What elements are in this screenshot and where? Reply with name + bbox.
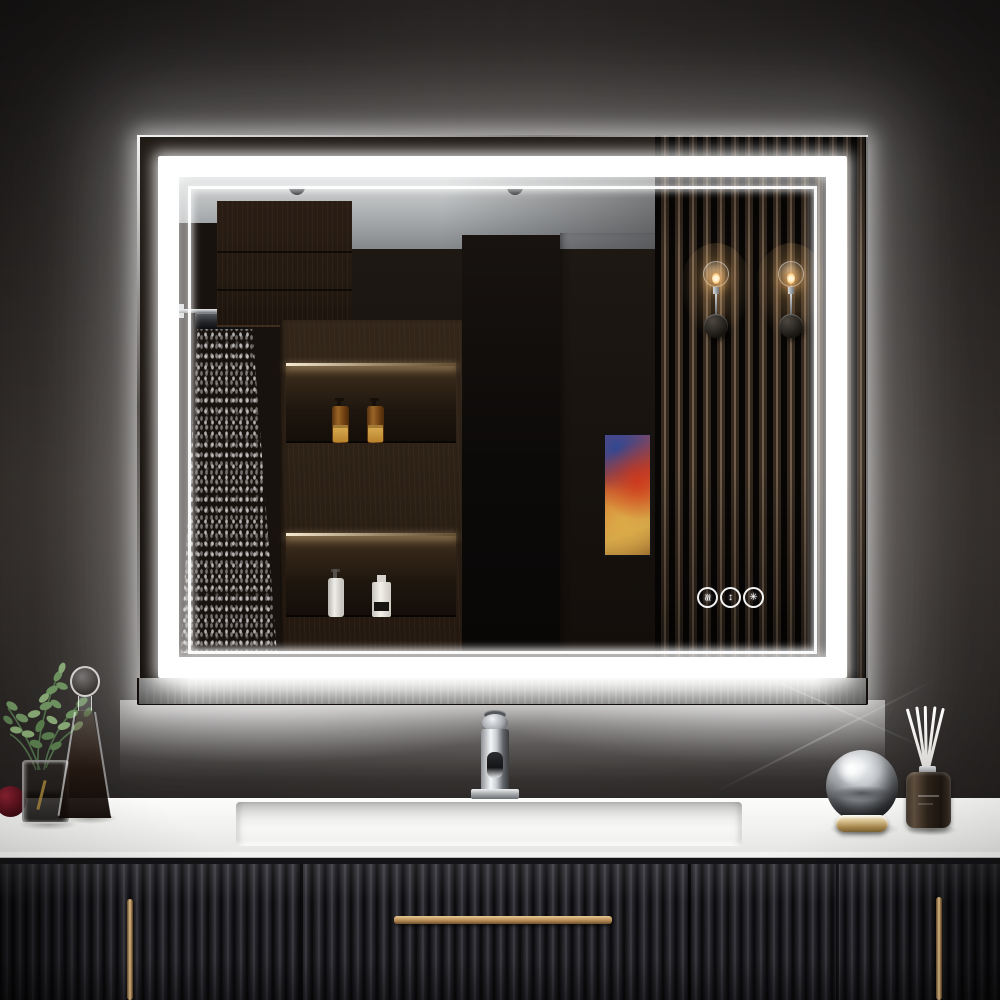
glass-decanter bbox=[57, 666, 113, 818]
diffuser-label bbox=[918, 795, 939, 797]
diffuser-bottle bbox=[906, 772, 951, 828]
touch-controls: ≋ ↕ ✳ bbox=[697, 587, 764, 608]
faucet-spout bbox=[487, 752, 503, 778]
color-temp-button[interactable]: ✳ bbox=[743, 587, 764, 608]
anti-fog-icon: ≋ bbox=[699, 593, 716, 601]
mirror-ball bbox=[826, 750, 898, 822]
color-temp-icon: ✳ bbox=[749, 592, 757, 603]
cabinet-door-seam bbox=[836, 864, 839, 1000]
led-mirror: ≋ ↕ ✳ bbox=[137, 135, 868, 705]
scene-bathroom: ≋ ↕ ✳ bbox=[0, 0, 1000, 1000]
mirror-right-edge bbox=[866, 135, 868, 678]
decanter-stopper bbox=[70, 666, 100, 697]
led-inner-line bbox=[188, 186, 817, 654]
cabinet-door-seam bbox=[688, 864, 691, 1000]
mirror-top-edge bbox=[137, 135, 868, 137]
vanity-cabinet bbox=[0, 864, 1000, 1000]
sink-basin bbox=[236, 802, 742, 846]
anti-fog-button[interactable]: ≋ bbox=[697, 587, 718, 608]
cabinet-handle-left[interactable] bbox=[127, 899, 133, 1000]
cabinet-door-seam bbox=[300, 864, 303, 1000]
cabinet-handle-right[interactable] bbox=[936, 897, 942, 1000]
mirror-bottom-edge bbox=[139, 678, 866, 704]
reed-diffuser bbox=[900, 698, 962, 830]
drawer-handle-center[interactable] bbox=[394, 916, 612, 924]
dimmer-button[interactable]: ↕ bbox=[720, 587, 741, 608]
faucet-base bbox=[471, 789, 519, 799]
gold-sprig bbox=[36, 780, 46, 810]
dimmer-icon: ↕ bbox=[728, 592, 733, 603]
mirror-ball-base bbox=[836, 815, 888, 832]
mirror-left-edge bbox=[137, 135, 140, 678]
faucet bbox=[471, 710, 519, 800]
